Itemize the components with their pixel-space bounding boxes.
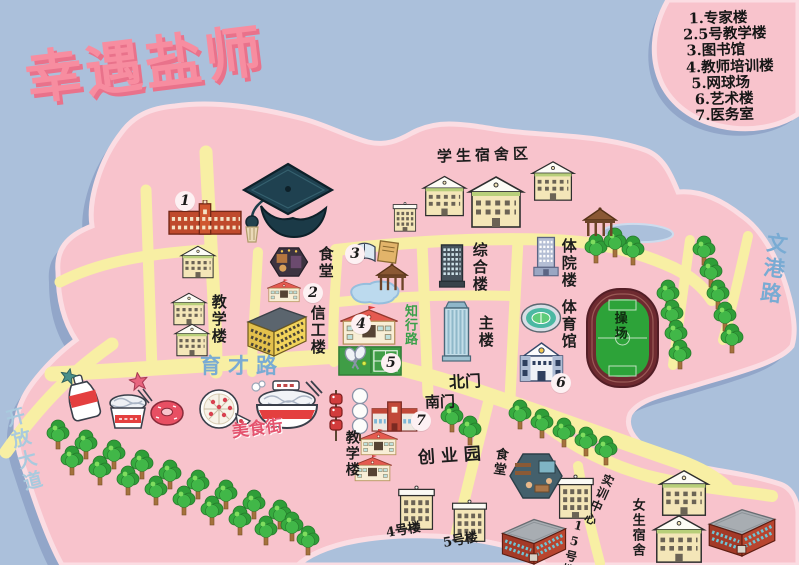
label-teaching-west: 教学楼 xyxy=(210,294,226,345)
tree-icon xyxy=(508,398,532,430)
red-brick-building-icon xyxy=(706,503,778,557)
canteen-scene-icon xyxy=(268,247,310,277)
pavilion-icon xyxy=(581,207,619,239)
marker-1-expert-building: 1 xyxy=(175,191,195,211)
tree-icon xyxy=(668,338,692,370)
tree-icon xyxy=(720,322,744,354)
label-student-dorm-area: 学生宿舍区 xyxy=(437,146,533,165)
tree-icon xyxy=(594,434,618,466)
marker-6-art-building: 6 xyxy=(551,373,571,393)
campus-map-canvas: 操场 幸遇盐师 1.专家楼 2.5号教学楼 3.图书馆 4.教师培训楼 5.网球… xyxy=(0,0,799,565)
label-xingong-building: 信工楼 xyxy=(309,305,325,356)
map-legend: 1.专家楼 2.5号教学楼 3.图书馆 4.教师培训楼 5.网球场 6.艺术楼 … xyxy=(683,9,799,126)
teaching-building-5-icon xyxy=(266,279,302,303)
label-tiyuan-building: 体院楼 xyxy=(560,238,576,289)
teaching-building-icon xyxy=(163,292,215,326)
tiyuan-tower-icon xyxy=(532,235,560,281)
dorm-building-icon xyxy=(466,174,526,230)
tree-icon xyxy=(621,234,645,266)
teaching-building-icon xyxy=(172,245,224,279)
dorm-building-icon xyxy=(421,173,468,219)
tree-icon xyxy=(296,524,320,556)
cafe-scene-icon xyxy=(509,453,563,499)
building-15-icon xyxy=(498,513,570,565)
label-zhixing-road: 知行路 xyxy=(400,304,419,346)
label-yucai-road: 育才路 xyxy=(200,350,284,380)
girls-dorm-icon xyxy=(651,514,707,564)
marker-7-clinic: 7 xyxy=(411,411,431,431)
tree-icon xyxy=(530,407,554,439)
label-south-gate: 南门 xyxy=(425,394,456,411)
tree-icon xyxy=(60,444,84,476)
label-north-gate: 北门 xyxy=(449,373,482,391)
label-canteen-south: 食堂 xyxy=(490,446,508,478)
star-icon xyxy=(128,371,149,392)
zonghe-tower-icon xyxy=(437,243,467,289)
dorm-building-icon xyxy=(392,198,418,236)
label-main-building: 主楼 xyxy=(477,315,493,349)
graduation-cap-icon xyxy=(236,156,336,246)
legend-item: 7.医务室 xyxy=(695,106,799,125)
label-girls-dorm: 女生宿舍 xyxy=(630,498,644,558)
star-icon xyxy=(58,366,78,386)
marker-5-tennis-court: 5 xyxy=(381,353,401,373)
tree-icon xyxy=(144,474,168,506)
cup-noodles-icon xyxy=(104,388,154,430)
label-canteen-north: 食堂 xyxy=(317,246,333,280)
running-track-icon: 操场 xyxy=(585,287,660,389)
pavilion-icon xyxy=(374,263,410,293)
dorm-building-icon xyxy=(530,156,576,206)
marker-3-library: 3 xyxy=(345,244,365,264)
tree-icon xyxy=(116,464,140,496)
label-zonghe-building: 综合楼 xyxy=(471,242,487,293)
tree-icon xyxy=(254,514,278,546)
marker-4-teacher-training: 4 xyxy=(351,314,371,334)
tree-icon xyxy=(88,454,112,486)
label-gymnasium: 体育馆 xyxy=(560,299,576,350)
gymnasium-stadium-icon xyxy=(520,300,562,336)
label-teaching-south: 教学楼 xyxy=(344,430,359,478)
tree-icon xyxy=(552,416,576,448)
main-tower-icon xyxy=(439,300,474,362)
label-playground: 操场 xyxy=(612,311,626,341)
tree-icon xyxy=(458,414,482,446)
girls-dorm-icon xyxy=(656,469,712,517)
tree-icon xyxy=(172,484,196,516)
tree-icon xyxy=(228,504,252,536)
donut-icon xyxy=(149,399,185,427)
tree-icon xyxy=(200,494,224,526)
marker-2-teaching-5: 2 xyxy=(303,283,323,303)
